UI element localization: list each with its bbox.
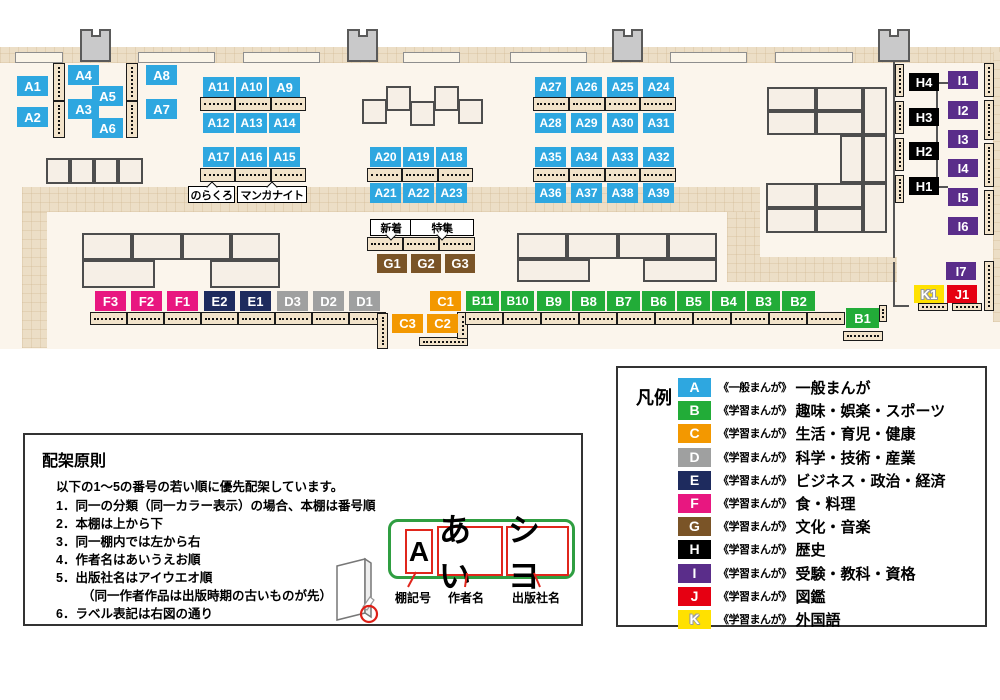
- legend-label: 文化・音楽: [796, 516, 871, 537]
- zone-label-H2: H2: [909, 142, 939, 160]
- legend-chip-B: B: [678, 401, 711, 420]
- zone-label-B5: B5: [677, 291, 710, 311]
- label-example-illustration: [25, 435, 585, 628]
- zone-label-A24: A24: [643, 77, 674, 97]
- bookshelf: [569, 97, 605, 111]
- zone-label-B2: B2: [782, 291, 815, 311]
- legend-title: 凡例: [636, 384, 672, 410]
- bookshelf: [879, 305, 887, 322]
- bookshelf: [895, 64, 904, 97]
- zone-label-A11: A11: [203, 77, 234, 97]
- zone-label-A17: A17: [203, 147, 234, 167]
- table: [458, 99, 483, 124]
- legend-label: 一般まんが: [796, 377, 871, 398]
- legend-label: 図鑑: [796, 586, 826, 607]
- zone-label-B8: B8: [572, 291, 605, 311]
- wall-window: [15, 52, 63, 63]
- bookshelf: [438, 168, 473, 182]
- bookshelf: [541, 312, 579, 325]
- bookshelf: [271, 97, 306, 111]
- zone-label-A13: A13: [236, 113, 267, 133]
- shelving-principles-box: 配架原則 以下の1～5の番号の若い順に優先配架しています。 1．同一の分類（同一…: [23, 433, 583, 626]
- zone-label-B1: B1: [846, 308, 879, 328]
- bookshelf: [367, 168, 402, 182]
- zone-label-F3: F3: [95, 291, 126, 311]
- zone-label-A18: A18: [436, 147, 467, 167]
- bookshelf: [579, 312, 617, 325]
- legend-chip-K: K: [678, 610, 711, 629]
- legend-chip-H: H: [678, 540, 711, 559]
- table: [517, 233, 567, 259]
- bookshelf: [569, 168, 605, 182]
- zone-label-I2: I2: [948, 101, 978, 119]
- wall-line: [895, 305, 909, 307]
- zone-label-A27: A27: [535, 77, 566, 97]
- legend-series: 《学習まんが》: [718, 402, 792, 418]
- bookshelf: [200, 97, 235, 111]
- bookshelf: [235, 168, 270, 182]
- table: [863, 183, 887, 233]
- legend-series: 《学習まんが》: [718, 541, 792, 557]
- zone-label-A25: A25: [607, 77, 638, 97]
- legend-series: 《一般まんが》: [718, 379, 792, 395]
- zone-label-A22: A22: [403, 183, 434, 203]
- bookshelf: [984, 190, 994, 235]
- zone-label-B9: B9: [537, 291, 570, 311]
- legend-label: 趣味・娯楽・スポーツ: [796, 400, 946, 421]
- legend-item-C: C《学習まんが》生活・育児・健康: [678, 422, 916, 444]
- zone-label-A6: A6: [92, 118, 123, 138]
- table: [816, 183, 863, 208]
- legend-series: 《学習まんが》: [718, 449, 792, 465]
- legend-chip-C: C: [678, 424, 711, 443]
- zone-label-I6: I6: [948, 217, 978, 235]
- zone-label-A38: A38: [607, 183, 638, 203]
- shelf-sign: マンガナイト: [237, 186, 307, 203]
- bookshelf: [271, 168, 306, 182]
- legend-series: 《学習まんが》: [718, 518, 792, 534]
- bookshelf: [201, 312, 238, 325]
- bookshelf: [918, 303, 948, 311]
- bookshelf: [895, 138, 904, 171]
- bookshelf: [439, 237, 475, 251]
- table: [840, 135, 863, 183]
- table: [668, 233, 717, 259]
- zone-label-J1: J1: [947, 285, 977, 303]
- zone-label-F2: F2: [131, 291, 162, 311]
- legend-series: 《学習まんが》: [718, 588, 792, 604]
- table: [766, 183, 816, 208]
- aisle-path: [22, 212, 47, 348]
- legend-series: 《学習まんが》: [718, 611, 792, 627]
- bookshelf: [90, 312, 127, 325]
- table: [567, 233, 618, 259]
- table: [767, 87, 816, 111]
- zone-label-G2: G2: [411, 254, 441, 273]
- zone-label-A28: A28: [535, 113, 566, 133]
- zone-label-A2: A2: [17, 107, 48, 127]
- bookshelf: [984, 63, 994, 97]
- zone-label-A34: A34: [571, 147, 602, 167]
- zone-label-I5: I5: [948, 188, 978, 206]
- table: [362, 99, 387, 124]
- zone-label-B3: B3: [747, 291, 780, 311]
- bookshelf: [312, 312, 349, 325]
- bookshelf: [402, 168, 437, 182]
- wall-window: [670, 52, 747, 63]
- table: [643, 259, 717, 282]
- zone-label-H3: H3: [909, 108, 939, 126]
- zone-label-A4: A4: [68, 65, 99, 85]
- legend-item-D: D《学習まんが》科学・技術・産業: [678, 446, 916, 468]
- zone-label-F1: F1: [167, 291, 198, 311]
- zone-label-I7: I7: [946, 262, 976, 280]
- pillar: [878, 29, 910, 62]
- zone-label-A39: A39: [643, 183, 674, 203]
- zone-label-A19: A19: [403, 147, 434, 167]
- bookshelf: [465, 312, 503, 325]
- bookshelf: [200, 168, 235, 182]
- zone-label-E1: E1: [240, 291, 271, 311]
- bookshelf: [984, 100, 994, 140]
- legend-item-F: F《学習まんが》食・料理: [678, 492, 856, 514]
- legend-series: 《学習まんが》: [718, 472, 792, 488]
- legend-chip-E: E: [678, 471, 711, 490]
- bookshelf: [952, 303, 982, 311]
- wall-window: [243, 52, 320, 63]
- zone-label-A30: A30: [607, 113, 638, 133]
- table: [434, 86, 459, 111]
- legend-chip-G: G: [678, 517, 711, 536]
- bookshelf: [503, 312, 541, 325]
- wall-window: [403, 52, 460, 63]
- bookshelf: [605, 168, 641, 182]
- zone-label-B11: B11: [466, 291, 499, 311]
- table: [816, 111, 863, 135]
- zone-label-A16: A16: [236, 147, 267, 167]
- zone-label-D3: D3: [277, 291, 308, 311]
- legend-item-K: K《学習まんが》外国語: [678, 608, 841, 630]
- bookshelf: [533, 168, 569, 182]
- bookshelf: [731, 312, 769, 325]
- bookshelf: [693, 312, 731, 325]
- table: [863, 87, 887, 135]
- table: [82, 260, 155, 288]
- bookshelf: [769, 312, 807, 325]
- legend-item-A: A《一般まんが》一般まんが: [678, 376, 871, 398]
- wall-window: [775, 52, 853, 63]
- shelf-sign: 新着: [370, 219, 412, 236]
- legend-item-B: B《学習まんが》趣味・娯楽・スポーツ: [678, 399, 945, 421]
- legend-chip-J: J: [678, 587, 711, 606]
- legend-item-J: J《学習まんが》図鑑: [678, 585, 826, 607]
- bookshelf: [617, 312, 655, 325]
- pillar: [612, 29, 643, 62]
- legend-item-G: G《学習まんが》文化・音楽: [678, 515, 871, 537]
- zone-label-G3: G3: [445, 254, 475, 273]
- wall-line: [936, 82, 938, 188]
- legend-chip-I: I: [678, 564, 711, 583]
- zone-label-A31: A31: [643, 113, 674, 133]
- legend-chip-A: A: [678, 378, 711, 397]
- zone-label-C2: C2: [427, 314, 458, 333]
- zone-label-C1: C1: [430, 291, 461, 311]
- bookshelf: [235, 97, 270, 111]
- bookshelf: [655, 312, 693, 325]
- legend-series: 《学習まんが》: [718, 565, 792, 581]
- zone-label-E2: E2: [204, 291, 235, 311]
- legend-item-H: H《学習まんが》歴史: [678, 538, 826, 560]
- zone-label-A29: A29: [571, 113, 602, 133]
- table: [82, 233, 132, 260]
- bookshelf: [377, 313, 388, 349]
- bookshelf: [53, 101, 65, 139]
- legend-label: 外国語: [796, 609, 841, 630]
- zone-label-I1: I1: [948, 71, 978, 89]
- zone-label-A20: A20: [370, 147, 401, 167]
- legend-label: 歴史: [796, 539, 826, 560]
- legend-label: 食・料理: [796, 493, 856, 514]
- bookshelf: [127, 312, 164, 325]
- zone-label-H4: H4: [909, 73, 939, 91]
- legend-box: 凡例 A《一般まんが》一般まんがB《学習まんが》趣味・娯楽・スポーツC《学習まん…: [616, 366, 987, 627]
- zone-label-A33: A33: [607, 147, 638, 167]
- zone-label-G1: G1: [377, 254, 407, 273]
- zone-label-A10: A10: [236, 77, 267, 97]
- table: [767, 111, 816, 135]
- legend-series: 《学習まんが》: [718, 425, 792, 441]
- table: [132, 233, 182, 260]
- table: [70, 158, 94, 184]
- wall-window: [510, 52, 587, 63]
- bookshelf: [126, 101, 138, 139]
- zone-label-I3: I3: [948, 130, 978, 148]
- bookshelf: [807, 312, 845, 325]
- legend-label: 科学・技術・産業: [796, 447, 916, 468]
- bookshelf: [533, 97, 569, 111]
- zone-label-A23: A23: [436, 183, 467, 203]
- bookshelf: [275, 312, 312, 325]
- pillar: [80, 29, 111, 62]
- zone-label-B4: B4: [712, 291, 745, 311]
- wall-line: [938, 186, 948, 188]
- table: [766, 208, 816, 233]
- zone-label-A7: A7: [146, 99, 177, 119]
- table: [816, 208, 863, 233]
- table: [182, 233, 231, 260]
- table: [618, 233, 668, 259]
- zone-label-B10: B10: [501, 291, 534, 311]
- table: [46, 158, 70, 184]
- wall-line: [893, 262, 895, 307]
- zone-label-B6: B6: [642, 291, 675, 311]
- bookshelf: [640, 168, 676, 182]
- legend-item-E: E《学習まんが》ビジネス・政治・経済: [678, 469, 946, 491]
- zone-label-K1: K1: [914, 285, 944, 303]
- zone-label-A26: A26: [571, 77, 602, 97]
- zone-label-A8: A8: [146, 65, 177, 85]
- zone-label-A32: A32: [643, 147, 674, 167]
- zone-label-A12: A12: [203, 113, 234, 133]
- bookshelf: [984, 261, 994, 311]
- shelf-sign: 特集: [410, 219, 474, 236]
- bookshelf: [843, 331, 883, 341]
- table: [863, 135, 887, 183]
- legend-label: 受験・教科・資格: [796, 563, 916, 584]
- table: [517, 259, 590, 282]
- zone-label-A35: A35: [535, 147, 566, 167]
- bookshelf: [895, 175, 904, 203]
- legend-label: 生活・育児・健康: [796, 423, 916, 444]
- zone-label-A14: A14: [269, 113, 300, 133]
- table: [816, 87, 863, 111]
- zone-label-A37: A37: [571, 183, 602, 203]
- zone-label-A9: A9: [269, 77, 300, 97]
- table: [231, 233, 280, 260]
- zone-label-A1: A1: [17, 76, 48, 96]
- legend-chip-F: F: [678, 494, 711, 513]
- zone-label-A3: A3: [68, 99, 99, 119]
- zone-label-D2: D2: [313, 291, 344, 311]
- legend-rows: A《一般まんが》一般まんがB《学習まんが》趣味・娯楽・スポーツC《学習まんが》生…: [678, 376, 979, 621]
- bookshelf: [895, 101, 904, 134]
- zone-label-D1: D1: [349, 291, 380, 311]
- zone-label-H1: H1: [909, 177, 939, 195]
- zone-label-A36: A36: [535, 183, 566, 203]
- table: [94, 158, 118, 184]
- floor-map: 凡例 A《一般まんが》一般まんがB《学習まんが》趣味・娯楽・スポーツC《学習まん…: [0, 0, 1000, 700]
- bookshelf: [126, 63, 138, 101]
- bookshelf: [164, 312, 201, 325]
- bookshelf: [984, 143, 994, 187]
- table: [210, 260, 280, 288]
- wall-window: [138, 52, 215, 63]
- zone-label-C3: C3: [392, 314, 423, 333]
- table: [386, 86, 411, 111]
- aisle-path: [727, 212, 760, 282]
- legend-item-I: I《学習まんが》受験・教科・資格: [678, 562, 916, 584]
- shelf-sign: のらくろ: [188, 186, 235, 203]
- bookshelf: [605, 97, 641, 111]
- zone-label-I4: I4: [948, 159, 978, 177]
- table: [118, 158, 143, 184]
- aisle-path: [993, 52, 1000, 322]
- wall-line: [938, 82, 948, 84]
- pillar: [347, 29, 378, 62]
- aisle-path: [760, 257, 897, 282]
- bookshelf: [238, 312, 275, 325]
- zone-label-A15: A15: [269, 147, 300, 167]
- legend-label: ビジネス・政治・経済: [796, 470, 946, 491]
- bookshelf: [403, 237, 439, 251]
- zone-label-B7: B7: [607, 291, 640, 311]
- zone-label-A21: A21: [370, 183, 401, 203]
- legend-series: 《学習まんが》: [718, 495, 792, 511]
- table: [410, 101, 435, 126]
- bookshelf: [640, 97, 676, 111]
- legend-chip-D: D: [678, 448, 711, 467]
- bookshelf: [53, 63, 65, 101]
- bookshelf: [367, 237, 403, 251]
